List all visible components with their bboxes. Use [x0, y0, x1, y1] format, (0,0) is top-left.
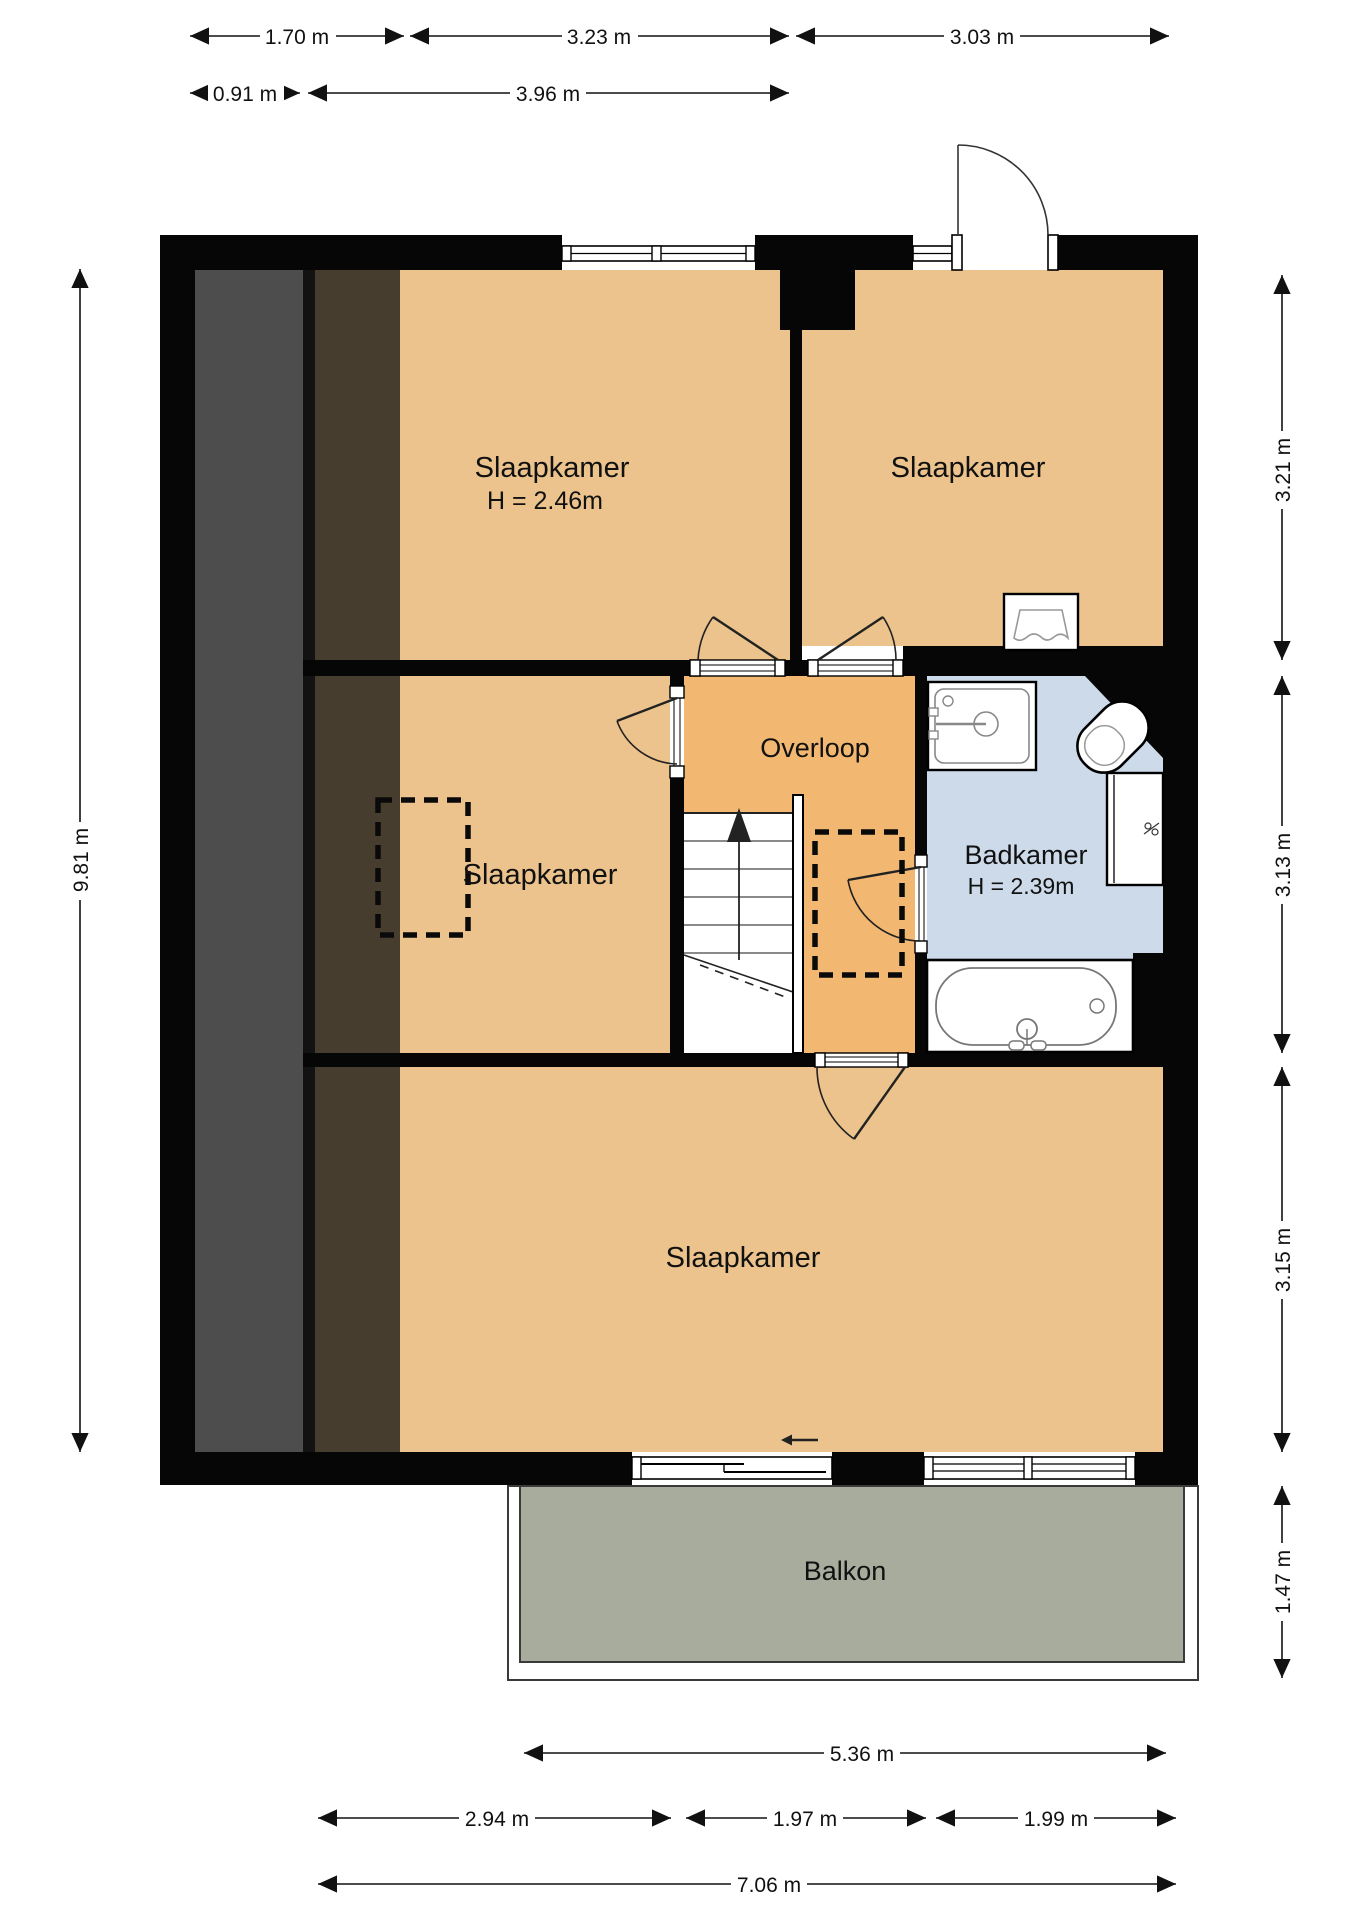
bedroom-top-left-height: H = 2.46m	[487, 487, 603, 515]
dim-right-3: 3.15 m	[1272, 1228, 1295, 1292]
wall-bottom-left-segment	[160, 1452, 632, 1485]
window-icon-bottom	[924, 1452, 1135, 1485]
wall-top-middle-segment	[755, 235, 913, 270]
boiler-cabinet-icon	[1107, 773, 1163, 885]
bathroom-height: H = 2.39m	[968, 873, 1075, 899]
wall-landing-left-b	[670, 778, 684, 1053]
balcony-label: Balkon	[804, 1556, 887, 1586]
wall-row1-left	[303, 660, 690, 676]
stair-stringer-wall	[793, 795, 803, 1053]
floorplan-canvas: Slaapkamer H = 2.46m Slaapkamer Slaapkam…	[0, 0, 1358, 1920]
staircase	[684, 795, 803, 1053]
dim-right-1: 3.21 m	[1272, 438, 1295, 502]
bedroom-top-right-label: Slaapkamer	[891, 452, 1046, 484]
wall-top-right-segment	[1058, 235, 1198, 270]
dim-bottom-1: 5.36 m	[830, 1743, 894, 1766]
wall-exterior-left	[160, 235, 195, 1485]
window-icon-top-left	[562, 235, 755, 270]
bathroom-label: Badkamer	[964, 840, 1087, 870]
chimney-block	[780, 270, 855, 330]
wall-bottom-middle-pier	[832, 1452, 924, 1485]
wall-row2-right	[908, 1053, 1163, 1067]
sloped-roof-gray-strip	[195, 270, 303, 1452]
dim-bottom-2b: 1.97 m	[773, 1808, 837, 1831]
wall-bathroom-left-b	[915, 953, 927, 1053]
dim-bottom-3: 7.06 m	[737, 1874, 801, 1897]
bedroom-bottom-label: Slaapkamer	[666, 1242, 821, 1274]
dim-right-4: 1.47 m	[1272, 1550, 1295, 1614]
door-swing-icon-exterior	[952, 145, 1058, 270]
wall-top-bedrooms-divider	[790, 330, 802, 660]
dim-left-1: 9.81 m	[70, 828, 93, 892]
bathtub-icon	[927, 960, 1133, 1052]
wall-row2-left	[303, 1053, 815, 1067]
dim-top-3: 3.03 m	[950, 26, 1014, 49]
landing-label: Overloop	[760, 733, 870, 763]
dim-top-1: 1.70 m	[265, 26, 329, 49]
dim-top2-2: 3.96 m	[516, 83, 580, 106]
bedroom-top-left-label: Slaapkamer	[475, 452, 630, 484]
dim-bottom-2a: 2.94 m	[465, 1808, 529, 1831]
wall-landing-left-a	[670, 676, 684, 686]
wall-exterior-right	[1163, 235, 1198, 1485]
sink-icon	[928, 682, 1036, 770]
dim-right-2: 3.13 m	[1272, 833, 1295, 897]
wall-bottom-right-segment	[1135, 1452, 1198, 1485]
wall-bathroom-left-a	[915, 676, 927, 855]
floorplan-page: Slaapkamer H = 2.46m Slaapkamer Slaapkam…	[0, 0, 1358, 1920]
dim-top-2: 3.23 m	[567, 26, 631, 49]
sliding-door-icon-balcony	[632, 1452, 832, 1485]
wall-top-left-segment	[160, 235, 562, 270]
knee-wall-line	[303, 270, 315, 1452]
sloped-roof-brown-strip	[315, 270, 400, 1452]
window-icon-top-right	[913, 235, 952, 270]
wall-bathtub-right-chunk	[1133, 953, 1163, 1067]
bedroom-middle-left-label: Slaapkamer	[463, 859, 618, 891]
dim-bottom-2c: 1.99 m	[1024, 1808, 1088, 1831]
dim-top2-1: 0.91 m	[213, 83, 277, 106]
wall-row1-center-pier	[785, 660, 808, 676]
washbasin-icon	[1004, 594, 1078, 650]
